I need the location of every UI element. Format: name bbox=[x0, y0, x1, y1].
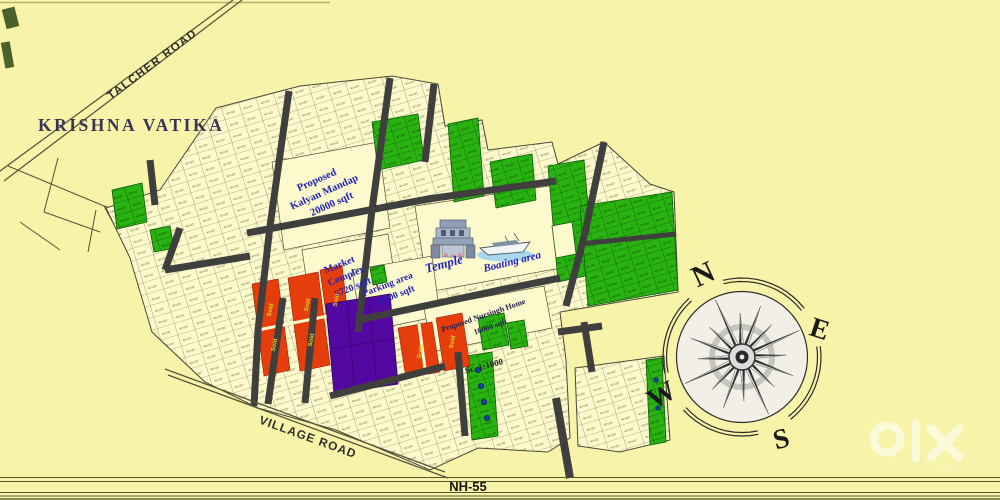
plot-layout-map: 40'x30' 40'x30' bbox=[0, 0, 1000, 500]
compass-rose bbox=[663, 278, 821, 436]
site-map-canvas: 40'x30' 40'x30' bbox=[0, 0, 1000, 500]
edge-plot-fragment bbox=[2, 7, 19, 30]
compass-north: N bbox=[686, 255, 720, 294]
nh55-label: NH-55 bbox=[449, 479, 487, 494]
olx-l-glyph bbox=[912, 419, 920, 463]
edge-plot-fragment bbox=[1, 41, 14, 68]
olx-country-label: INDIA bbox=[933, 465, 959, 471]
compass-east: E bbox=[806, 312, 833, 347]
site-title: KRISHNA VATIKA bbox=[38, 115, 224, 135]
olx-watermark: INDIA bbox=[874, 419, 960, 471]
compass-south: S bbox=[770, 422, 793, 456]
talcher-road-label: TALCHER ROAD bbox=[105, 27, 199, 102]
olx-o-glyph bbox=[874, 426, 901, 453]
nh55-road bbox=[0, 478, 1000, 500]
